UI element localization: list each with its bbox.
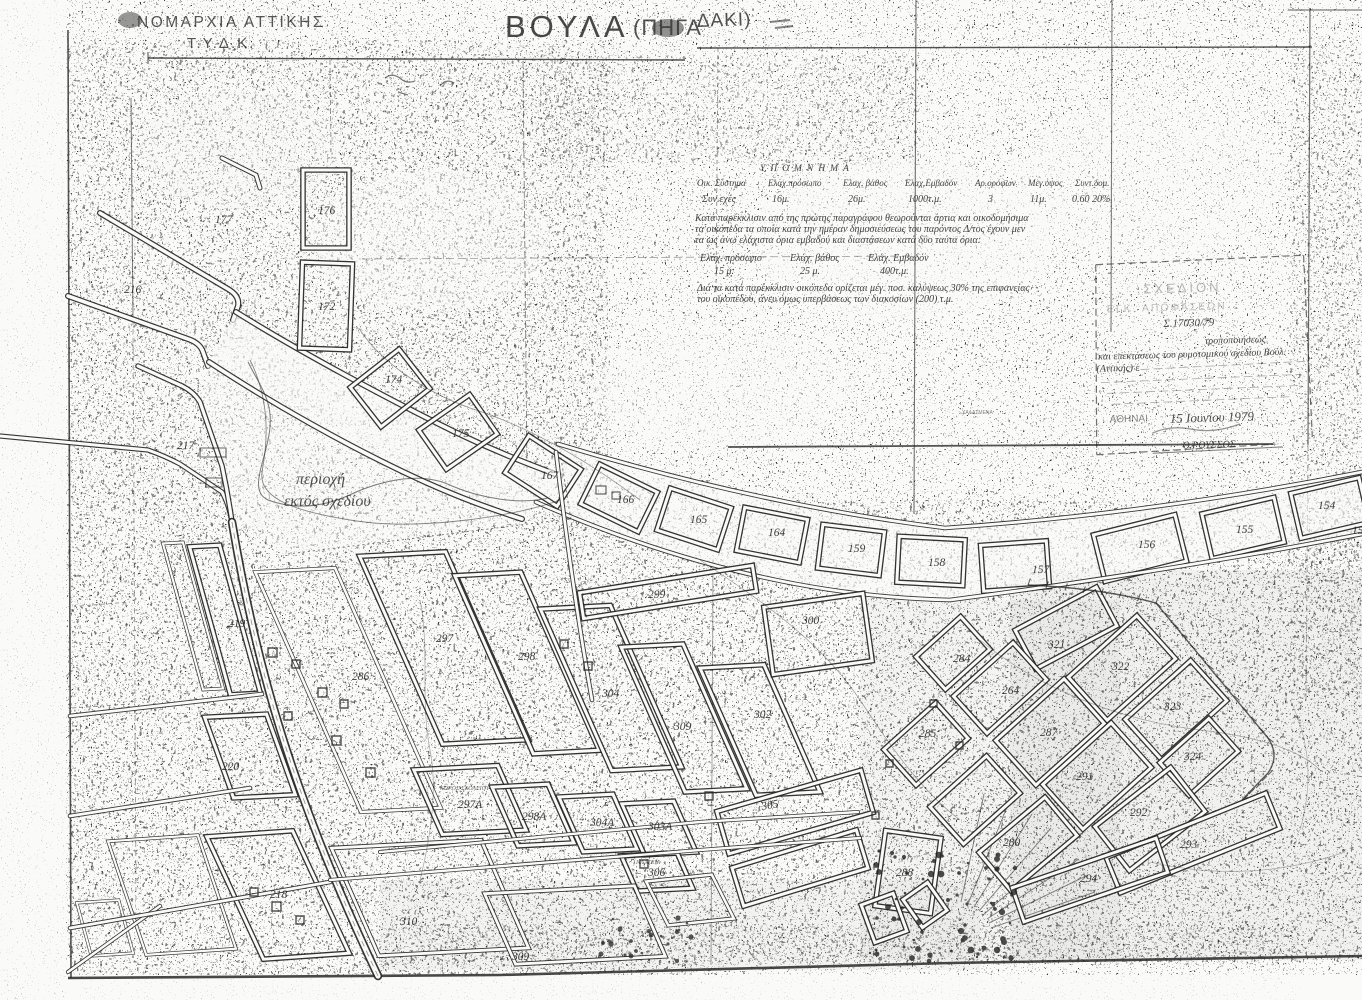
svg-text:26μ.: 26μ.	[848, 194, 866, 205]
svg-text:306: 306	[647, 867, 666, 879]
svg-text:158: 158	[928, 557, 946, 569]
svg-text:284: 284	[953, 653, 971, 665]
svg-text:285: 285	[919, 728, 937, 740]
svg-text:288: 288	[896, 867, 914, 879]
svg-text:321: 321	[1047, 639, 1065, 651]
svg-text:216: 216	[124, 284, 142, 296]
svg-text:165: 165	[690, 514, 708, 526]
svg-text:Σ.17030/79: Σ.17030/79	[1162, 317, 1215, 330]
svg-text:157: 157	[1032, 564, 1051, 576]
svg-text:174: 174	[385, 374, 403, 386]
svg-text:ΝΟΜΑΡΧΙΑ ΑΤΤΙΚΗΣ: ΝΟΜΑΡΧΙΑ ΑΤΤΙΚΗΣ	[137, 14, 325, 31]
svg-text:Διά τα κατά παρέκκλισιν οικόπ: Διά τα κατά παρέκκλισιν οικόπεδα ορίζετα…	[696, 283, 1030, 294]
svg-text:ΧΑΛΑΣΜΕΝΑ: ΧΑΛΑΣΜΕΝΑ	[962, 410, 994, 416]
svg-text:297Α: 297Α	[458, 799, 483, 811]
svg-text:Κατά παρέκκλισιν από της πρώτη: Κατά παρέκκλισιν από της πρώτης παραγράφ…	[694, 213, 1029, 224]
svg-text:155: 155	[1236, 524, 1254, 536]
svg-text:Ελαχ.Εμβαδόν: Ελαχ.Εμβαδόν	[904, 178, 957, 188]
svg-text:Ελαχ.πρόσωπο: Ελαχ.πρόσωπο	[767, 178, 822, 188]
svg-text:219: 219	[228, 618, 246, 630]
svg-text:287: 287	[1040, 727, 1059, 739]
svg-text:164: 164	[768, 527, 786, 539]
svg-text:167: 167	[541, 470, 560, 482]
svg-text:286: 286	[352, 671, 370, 683]
svg-text:25 μ.: 25 μ.	[800, 266, 820, 277]
svg-text:154: 154	[1318, 500, 1336, 512]
svg-text:Ελάχ. Εμβαδόν: Ελάχ. Εμβαδόν	[867, 253, 929, 264]
svg-text:Συντ.δομ.: Συντ.δομ.	[1074, 178, 1109, 188]
svg-text:τροποποιήσεως: τροποποιήσεως	[1205, 334, 1267, 347]
svg-text:166: 166	[617, 494, 635, 506]
svg-text:11μ.: 11μ.	[1030, 194, 1047, 205]
svg-text:Μεγ.ύψος: Μεγ.ύψος	[1027, 178, 1063, 188]
svg-text:Ελαχ. βάθος: Ελαχ. βάθος	[842, 178, 888, 188]
svg-text:220: 220	[222, 761, 240, 773]
svg-text:310: 310	[399, 916, 418, 928]
svg-text:156: 156	[1138, 539, 1156, 551]
svg-text:15 μ.: 15 μ.	[714, 266, 734, 277]
svg-text:294: 294	[1080, 873, 1098, 885]
svg-text:309: 309	[511, 951, 530, 963]
svg-text:217: 217	[177, 440, 196, 452]
svg-text:τα ως άνω ελάχιστα όρια εμβαδο: τα ως άνω ελάχιστα όρια εμβαδού και διασ…	[695, 235, 981, 246]
svg-text:εκτός σχεδίου: εκτός σχεδίου	[284, 493, 371, 510]
svg-text:302: 302	[753, 709, 772, 721]
svg-text:298: 298	[518, 651, 536, 663]
svg-text:(Αττικής) ε: (Αττικής) ε	[1096, 363, 1139, 375]
svg-text:175: 175	[452, 428, 470, 440]
svg-text:303Α: 303Α	[647, 821, 673, 833]
svg-text:297: 297	[436, 633, 455, 645]
svg-text:299: 299	[648, 589, 666, 601]
svg-text:176: 176	[318, 205, 336, 217]
svg-text:3: 3	[987, 194, 993, 205]
svg-text:ΠΛΑΤΕΙΑ: ΠΛΑΤΕΙΑ	[635, 860, 660, 866]
svg-text:264: 264	[1002, 685, 1020, 697]
svg-text:ΧΩΡΟΣ ΣΧΟΛΕΙΟΥ: ΧΩΡΟΣ ΣΧΟΛΕΙΟΥ	[439, 786, 490, 792]
svg-text:περιοχή: περιοχή	[296, 471, 345, 488]
svg-text:ΣΧΕΔΙΟΝ: ΣΧΕΔΙΟΝ	[1143, 279, 1222, 296]
svg-text:Αρ.ορόφων: Αρ.ορόφων	[974, 178, 1016, 188]
svg-text:309: 309	[673, 721, 692, 733]
svg-text:177: 177	[215, 214, 234, 226]
svg-text:323: 323	[1163, 701, 1182, 713]
svg-text:322: 322	[1111, 661, 1130, 673]
svg-text:172: 172	[318, 301, 336, 313]
svg-text:400τ.μ.: 400τ.μ.	[880, 266, 909, 277]
svg-text:1000τ.μ.: 1000τ.μ.	[908, 194, 942, 205]
svg-text:16μ.: 16μ.	[772, 194, 790, 205]
svg-text:15 Ιουνίου 1979: 15 Ιουνίου 1979	[1170, 409, 1255, 426]
svg-text:ΥΠΟΜΝΗΜΑ: ΥΠΟΜΝΗΜΑ	[760, 164, 854, 174]
svg-text:Οικ. Σύστημα: Οικ. Σύστημα	[697, 178, 746, 188]
svg-text:324: 324	[1183, 751, 1202, 763]
svg-text:291: 291	[1076, 771, 1093, 783]
svg-text:218: 218	[270, 889, 288, 901]
svg-text:Ελάχ. βάθος: Ελάχ. βάθος	[789, 253, 840, 264]
svg-text:304Α: 304Α	[589, 817, 615, 829]
svg-text:280: 280	[1003, 837, 1021, 849]
svg-text:298Α: 298Α	[522, 811, 547, 823]
svg-text:ΒΟΥΛΑ: ΒΟΥΛΑ	[505, 9, 629, 44]
svg-text:0.60 20%: 0.60 20%	[1072, 194, 1110, 205]
svg-text:Συν.εχές: Συν.εχές	[701, 194, 737, 205]
svg-text:292: 292	[1130, 807, 1148, 819]
svg-text:293: 293	[1180, 839, 1198, 851]
svg-text:Ελάχ. πρόσωπο: Ελάχ. πρόσωπο	[699, 253, 762, 264]
svg-text:του οικοπέδου, άνευ όμως υπερβ: του οικοπέδου, άνευ όμως υπερβάσεως των …	[697, 294, 953, 305]
svg-text:τα οικόπεδα τα οποία κατά την: τα οικόπεδα τα οποία κατά την ημέραν δημ…	[695, 224, 1026, 235]
svg-text:Τ.Υ.Δ.Κ.: Τ.Υ.Δ.Κ.	[187, 35, 255, 52]
svg-text:300: 300	[801, 615, 820, 627]
svg-text:304: 304	[601, 688, 620, 700]
svg-text:159: 159	[848, 543, 866, 555]
svg-text:153: 153	[1352, 525, 1362, 537]
svg-text:ΑΘΗΝΑΙ: ΑΘΗΝΑΙ	[1110, 413, 1148, 425]
svg-text:ΔΑΚΙ): ΔΑΚΙ)	[696, 9, 751, 32]
